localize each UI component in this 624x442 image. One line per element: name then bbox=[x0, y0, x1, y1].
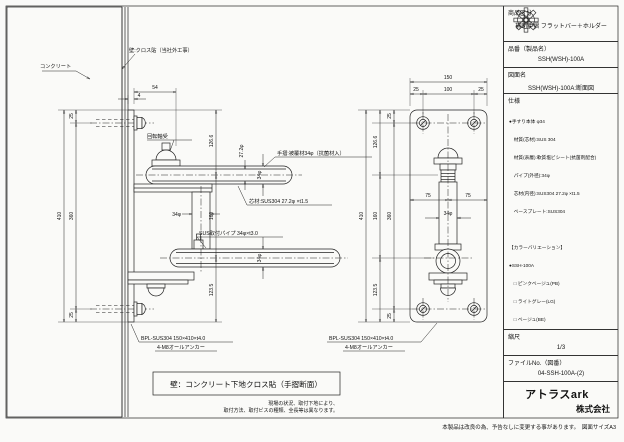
dim-126-6: 126.6 bbox=[209, 135, 215, 148]
dim-410: 410 bbox=[359, 212, 365, 221]
label-wall-finish: 壁:クロス貼（当社外工事） bbox=[129, 46, 193, 54]
title-block-drawing-name: 図面名 SSH(WSH)-100A:断面図 bbox=[504, 68, 618, 94]
dim-34: 34φ bbox=[257, 253, 263, 263]
company-name: アトラスark bbox=[504, 386, 610, 402]
note-line-1: 現場の状況、取付下地により、 bbox=[268, 400, 338, 407]
label-handrail: 手摺:被覆材34φ（抗菌材入） bbox=[277, 149, 345, 157]
dim-123-5: 123.5 bbox=[373, 284, 379, 297]
dim-75: 75 bbox=[425, 193, 431, 199]
scale-value: 1/3 bbox=[504, 345, 618, 351]
caption-block: 壁：コンクリート下地クロス貼（手摺断面） 現場の状況、取付下地により、 取付方法… bbox=[153, 372, 340, 414]
dim-25: 25 bbox=[387, 313, 393, 319]
dim-25: 25 bbox=[413, 87, 419, 93]
dim-75: 75 bbox=[465, 193, 471, 199]
title-block-company: アトラスark 株式会社 bbox=[504, 382, 618, 418]
title-block-spec: 仕様 ●手すり本体 φ34 材質(芯材):SUS 304 材質(表層):軟質塩ビ… bbox=[504, 94, 618, 330]
part-no-label: 品番（製品名） bbox=[504, 42, 618, 53]
dim-150: 150 bbox=[444, 75, 453, 81]
dim-25: 25 bbox=[478, 87, 484, 93]
dim-360: 360 bbox=[387, 212, 393, 221]
label-baseplate-left: BPL-SUS304 150×410×t4.0 bbox=[141, 336, 205, 342]
side-view-baseplate bbox=[128, 110, 134, 322]
title-block-part-no: 品番（製品名） SSH(WSH)-100A bbox=[504, 42, 618, 68]
dim-34: 34φ bbox=[172, 212, 182, 218]
dim-126-6: 126.6 bbox=[373, 136, 379, 149]
scale-label: 縮尺 bbox=[504, 330, 618, 341]
dim-4: 4 bbox=[138, 93, 141, 99]
spec-list: ●手すり本体 φ34 材質(芯材):SUS 304 材質(表層):軟質塩ビシート… bbox=[504, 105, 618, 330]
caption-text: 壁：コンクリート下地クロス貼（手摺断面） bbox=[170, 379, 322, 389]
label-bearing: 回転軸受 bbox=[147, 132, 168, 140]
dim-160: 160 bbox=[209, 212, 215, 221]
part-no-value: SSH(WSH)-100A bbox=[504, 57, 618, 63]
drawing-name-label: 図面名 bbox=[504, 68, 618, 79]
title-block-file-no: ファイルNo.（図番） 04-SSH-100A-(2) bbox=[504, 356, 618, 382]
dim-360: 360 bbox=[69, 212, 75, 221]
label-core: 芯材:SUS304 27.2φ ×t1.5 bbox=[249, 197, 308, 205]
company-suffix: 株式会社 bbox=[504, 403, 610, 415]
dim-25: 25 bbox=[69, 312, 75, 318]
dim-123-5: 123.5 bbox=[209, 284, 215, 297]
file-no-value: 04-SSH-100A-(2) bbox=[504, 371, 618, 377]
label-anchor-left: 4-M8オールアンカー bbox=[157, 344, 205, 351]
label-mount-pipe: SUS取付パイプ 34φ×t3.0 bbox=[199, 229, 258, 237]
dim-34: 34φ bbox=[444, 211, 454, 217]
dim-27-2: 27.2φ bbox=[239, 144, 245, 158]
label-concrete: コンクリート bbox=[40, 63, 71, 70]
dim-25: 25 bbox=[387, 113, 393, 119]
dim-160: 160 bbox=[373, 212, 379, 221]
rotation-bearing bbox=[152, 143, 180, 166]
drawing-name-value: SSH(WSH)-100A:断面図 bbox=[504, 83, 618, 92]
bracket-arm bbox=[134, 184, 212, 192]
label-anchor-right: 4-M8オールアンカー bbox=[345, 344, 393, 351]
title-block: 商品区分 補助手摺 フラットバー＋ホルダー 品番（製品名） SSH(WSH)-1… bbox=[503, 6, 618, 418]
note-line-2: 取付方法、取付ビスの種類、全長等は異なります。 bbox=[223, 407, 338, 414]
dim-25: 25 bbox=[69, 113, 75, 119]
company-name-block: アトラスark 株式会社 bbox=[504, 386, 618, 415]
dim-34: 34φ bbox=[257, 170, 263, 180]
footer-disclaimer: 本製品は改良の為、予告なしに変更する事があります。 図面サイズA3 bbox=[442, 423, 616, 431]
drawing-sheet: 54 4 410 25 360 25 126.6 160 123.5 34φ 3… bbox=[0, 0, 624, 442]
file-no-label: ファイルNo.（図番） bbox=[504, 356, 618, 367]
bottom-flange bbox=[128, 272, 194, 296]
dim-54: 54 bbox=[152, 85, 158, 91]
dim-100: 100 bbox=[444, 87, 453, 93]
title-block-scale: 縮尺 1/3 bbox=[504, 330, 618, 356]
dim-410: 410 bbox=[57, 212, 63, 221]
spec-label: 仕様 bbox=[504, 94, 618, 105]
label-baseplate-right: BPL-SUS304 150×410×t4.0 bbox=[329, 336, 393, 342]
leader-labels: コンクリート 壁:クロス貼（当社外工事） 回転軸受 手摺:被覆材34φ（抗菌材入… bbox=[40, 46, 437, 351]
